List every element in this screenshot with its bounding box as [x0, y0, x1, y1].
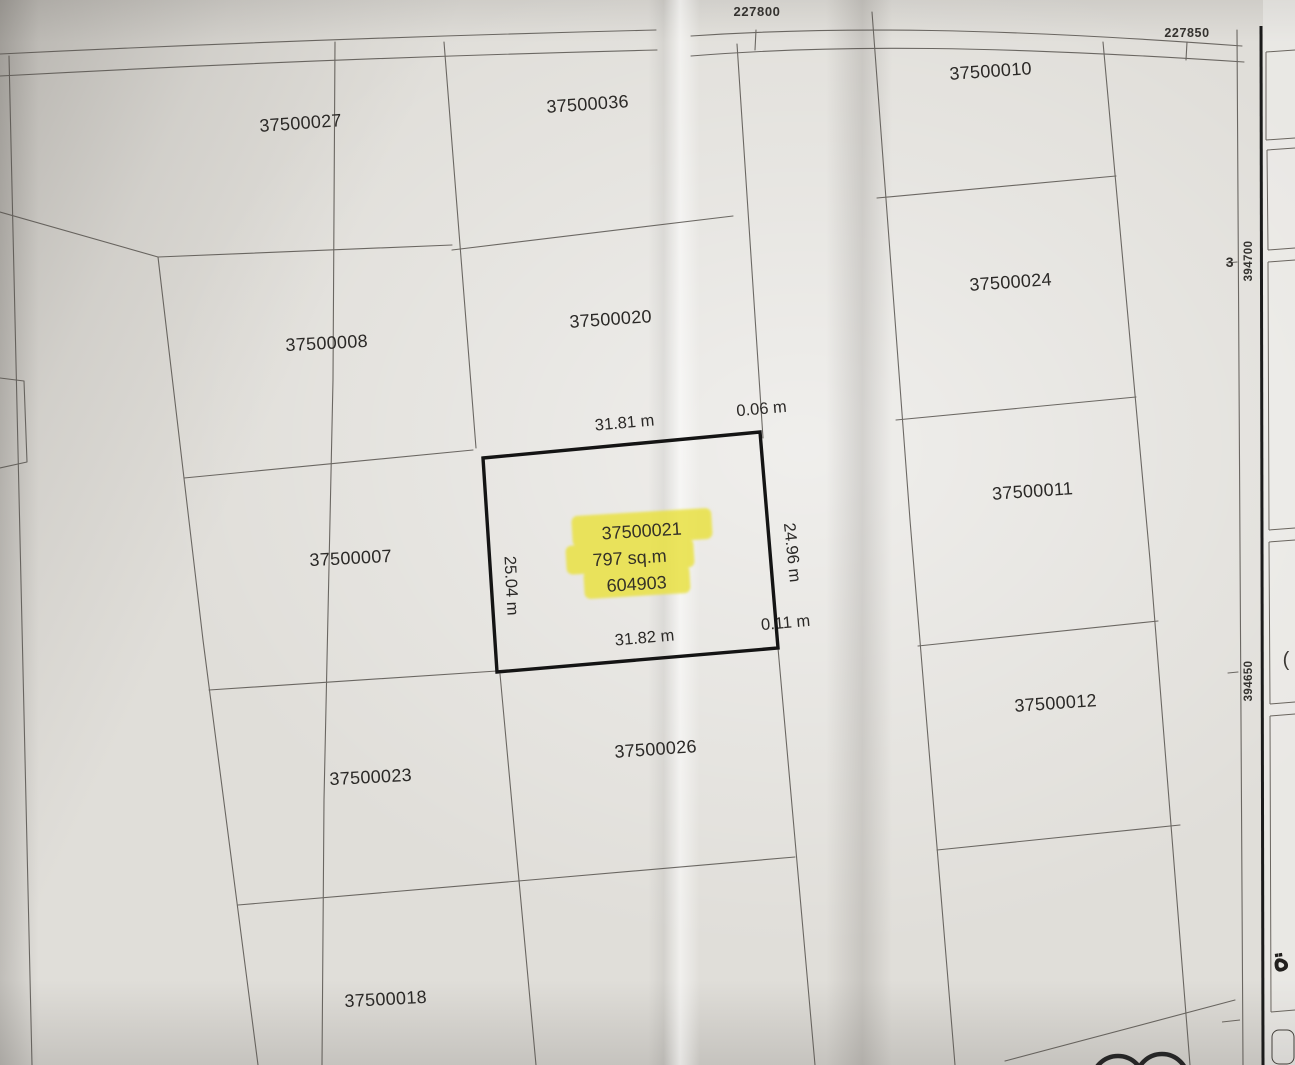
parcel-label: 37500007: [309, 546, 392, 570]
dimension-left: 25.04 m: [500, 555, 521, 615]
boundary-10-24: [877, 176, 1116, 198]
bottom-right-stamp-circle: [1092, 1056, 1144, 1065]
dimension-bottom-offset: 0.11 m: [760, 612, 811, 634]
parcel-label: 37500027: [259, 110, 343, 136]
map-canvas: 31.81 m 0.06 m 31.82 m 0.11 m 25.04 m 24…: [0, 0, 1295, 1065]
boundary-11-12: [918, 621, 1158, 646]
boundary-vertical-c: [737, 44, 763, 438]
parcel-label: 37500023: [329, 765, 412, 789]
boundary-east-long: [1103, 42, 1190, 1065]
boundary-23-18: [238, 857, 795, 905]
boundary-08-07: [184, 450, 473, 478]
boundary-west-long: [158, 257, 258, 1065]
margin-cells: [1222, 50, 1295, 1064]
boundary-bottom-right-diagonal: [1005, 1000, 1235, 1061]
parcel-label: 37500018: [344, 987, 427, 1011]
grid-labels: 227800 227850 394700 394650 3: [734, 4, 1255, 701]
grid-label-northing-2: 394650: [1243, 661, 1255, 702]
boundary-23-26: [500, 674, 536, 1065]
parcel-label: 37500012: [1014, 690, 1098, 716]
margin-glyphs: ( ة: [1270, 649, 1292, 978]
grid-label-easting-1: 227800: [734, 4, 781, 19]
margin-cell-line: [1266, 50, 1295, 140]
margin-paren: (: [1283, 649, 1290, 671]
margin-arabic-letter: ة: [1270, 940, 1292, 978]
dimension-top-offset: 0.06 m: [736, 398, 788, 420]
boundary-12-south: [937, 825, 1180, 850]
parcel-label: 37500008: [285, 331, 368, 355]
cadastral-map-scan: 31.81 m 0.06 m 31.82 m 0.11 m 25.04 m 24…: [0, 0, 1295, 1065]
boundary-07-23: [209, 671, 497, 690]
sheet-neatline-thin: [1237, 30, 1243, 1065]
parcel-label: 37500024: [969, 269, 1053, 295]
grid-label-northing-1: 394700: [1243, 241, 1255, 282]
parcel-label: 37500011: [991, 478, 1073, 504]
parcel-label: 37500026: [614, 736, 698, 762]
bottom-right-stamp-circle: [1136, 1054, 1188, 1065]
margin-cell-line: [1269, 540, 1295, 704]
grid-label-easting-2: 227850: [1164, 26, 1209, 40]
boundary-26-east: [778, 648, 815, 1065]
grid-tick-227850: [1186, 42, 1187, 60]
boundary-24-11: [896, 397, 1136, 420]
boundary-36-20: [452, 216, 733, 250]
parcel-label: 37500010: [949, 58, 1033, 84]
grid-label-partial: 3: [1226, 254, 1234, 270]
dimension-top: 31.81 m: [594, 411, 655, 434]
dimension-bottom: 31.82 m: [614, 626, 675, 649]
boundary-west-step: [0, 212, 158, 257]
parcel-label: 37500020: [569, 306, 653, 332]
dimension-right: 24.96 m: [780, 522, 804, 583]
boundary-27-08: [158, 245, 452, 257]
map-border-top-right: [691, 30, 1244, 62]
highlighted-parcel-number: 604903: [606, 572, 667, 596]
map-border-top-left: [0, 30, 657, 76]
margin-rounded-cell: [1272, 1030, 1294, 1064]
sheet-neatline-thick: [1261, 26, 1263, 1065]
grid-tick-394650: [1228, 672, 1238, 673]
map-border-left: [0, 56, 32, 1065]
margin-cell-line: [1222, 1020, 1240, 1022]
boundary-fold-west: [872, 12, 955, 1065]
margin-cell-line: [1268, 260, 1295, 530]
margin-cell-line: [1267, 148, 1295, 250]
parcel-label: 37500036: [546, 91, 630, 117]
